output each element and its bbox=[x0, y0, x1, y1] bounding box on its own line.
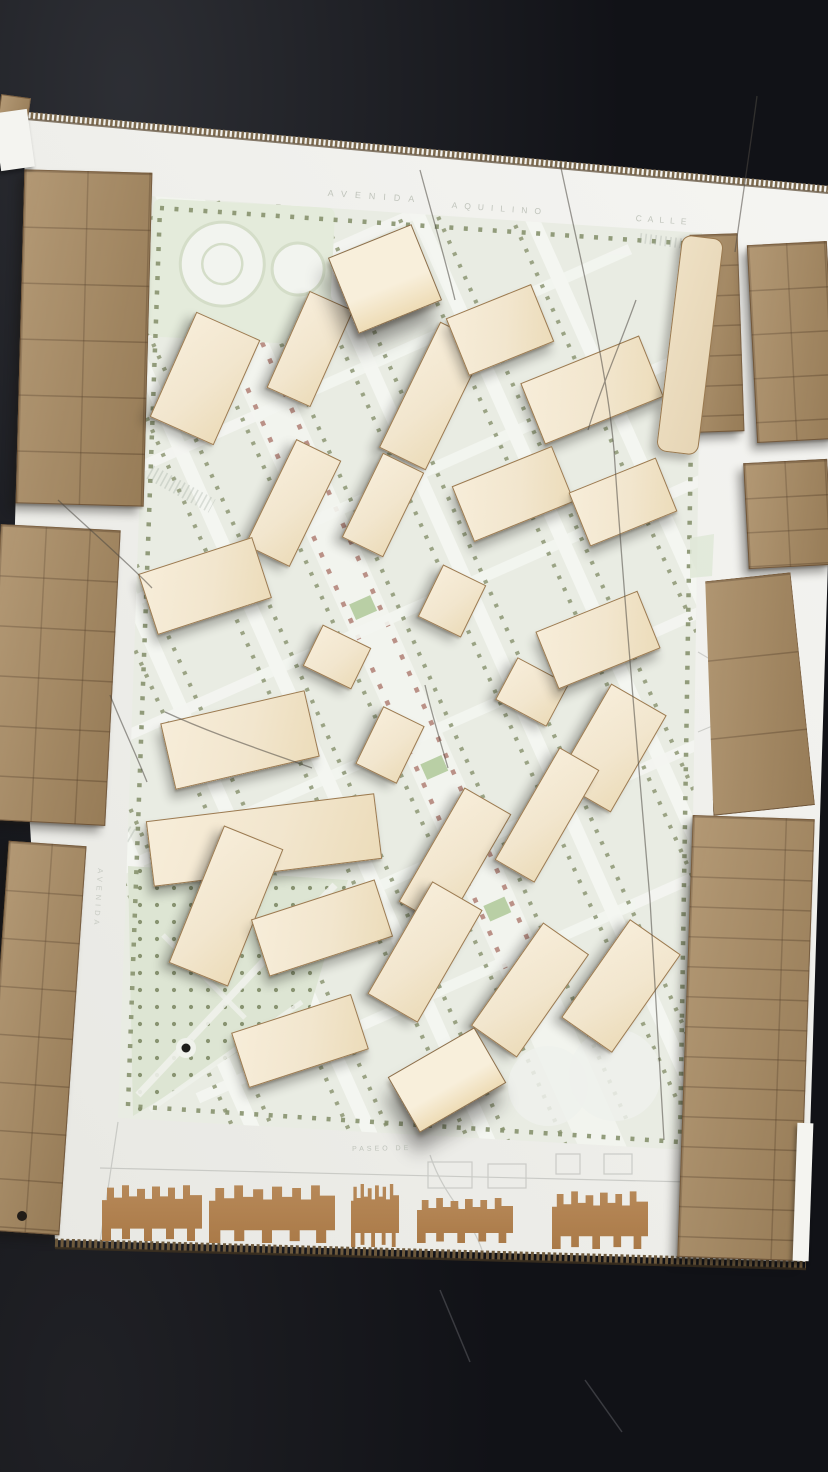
facade-cutout-strip bbox=[102, 1179, 202, 1241]
proposed-building-block bbox=[303, 624, 372, 689]
facade-cutout-strip bbox=[417, 1193, 513, 1243]
baseboard-foam-edge bbox=[0, 109, 35, 171]
proposed-building-block bbox=[150, 311, 261, 445]
proposed-building-block bbox=[251, 879, 393, 976]
proposed-building-block bbox=[245, 439, 342, 567]
facade-cutout-strip bbox=[209, 1179, 335, 1243]
photo-of-architecture-model: { "scene": { "description": "Photograph … bbox=[0, 0, 828, 1472]
context-building-block bbox=[689, 572, 815, 815]
proposed-building-block bbox=[231, 994, 369, 1088]
context-building-block bbox=[16, 169, 153, 506]
context-building-block bbox=[743, 459, 828, 569]
proposed-building-block bbox=[367, 881, 482, 1023]
facade-cutout-strip bbox=[552, 1185, 648, 1249]
proposed-building-block bbox=[561, 919, 681, 1053]
proposed-building-block bbox=[138, 537, 272, 635]
proposed-building-block bbox=[535, 591, 660, 690]
proposed-building-block bbox=[355, 706, 424, 784]
proposed-building-block bbox=[452, 446, 575, 542]
proposed-building-block bbox=[267, 291, 354, 407]
proposed-building-block bbox=[418, 564, 487, 637]
context-building-block bbox=[747, 241, 828, 443]
proposed-building-block bbox=[342, 453, 425, 558]
proposed-building-block bbox=[388, 1027, 507, 1132]
baseboard-foam-edge bbox=[793, 1123, 814, 1261]
proposed-building-block bbox=[160, 690, 320, 790]
context-building-block bbox=[0, 841, 87, 1235]
model-pieces-layer bbox=[0, 0, 828, 1472]
facade-cutout-strip bbox=[351, 1177, 399, 1247]
context-building-block bbox=[0, 524, 121, 826]
proposed-building-block bbox=[520, 335, 663, 444]
proposed-building-block bbox=[471, 922, 589, 1057]
proposed-building-block bbox=[569, 458, 678, 547]
